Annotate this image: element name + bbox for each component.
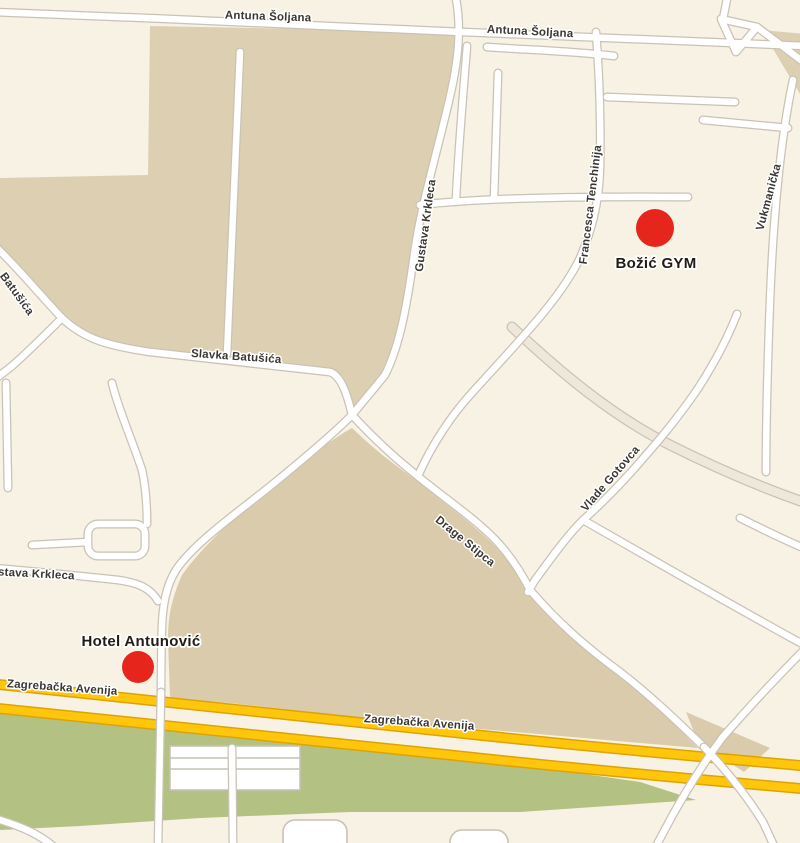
hotel-antunovic-marker-icon[interactable] [122,651,154,683]
hotel-antunovic-label: Hotel Antunović [82,633,201,650]
bozic-gym-marker-icon[interactable] [636,209,674,247]
map-canvas[interactable]: Antuna Šoljana Antuna Šoljana Batušića S… [0,0,800,843]
bozic-gym-label: Božić GYM [615,255,696,272]
